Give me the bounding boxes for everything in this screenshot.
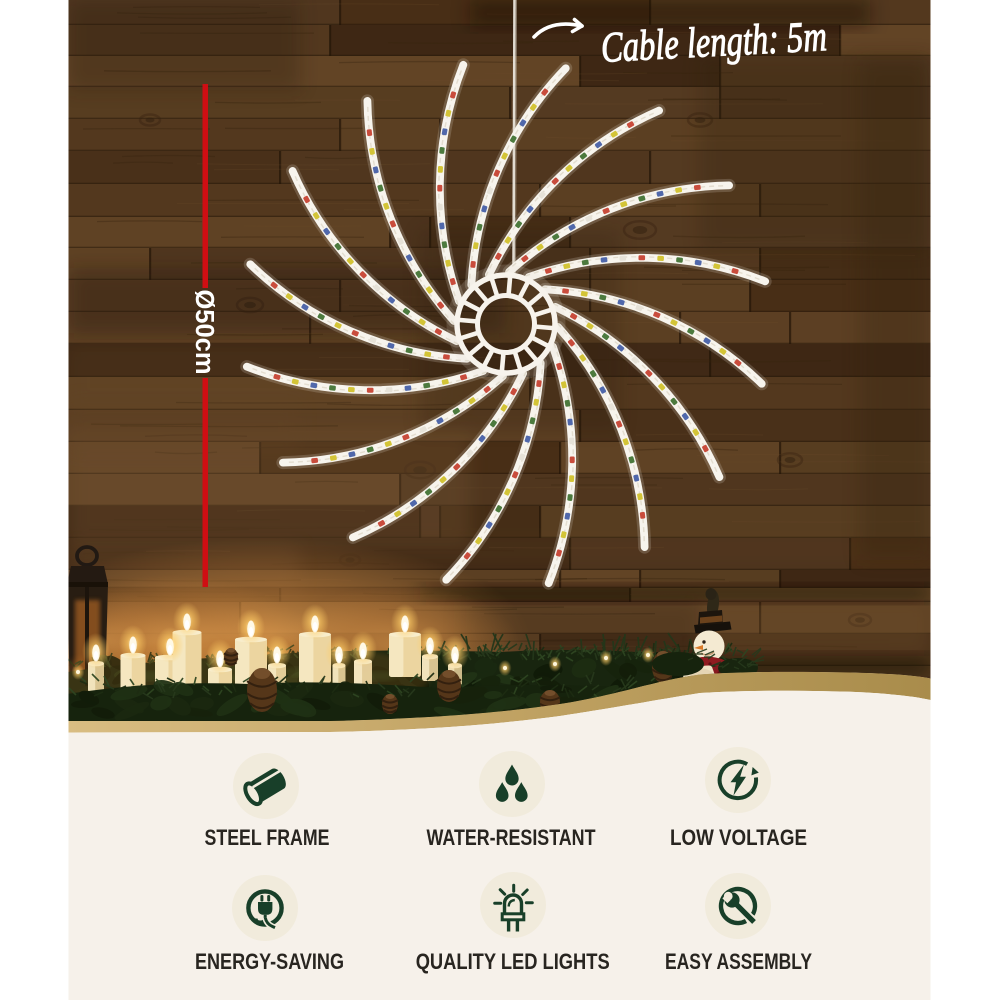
svg-text:ENERGY-SAVING: ENERGY-SAVING bbox=[195, 949, 344, 974]
svg-text:EASY ASSEMBLY: EASY ASSEMBLY bbox=[665, 949, 812, 974]
svg-text:QUALITY LED LIGHTS: QUALITY LED LIGHTS bbox=[416, 949, 610, 974]
svg-text:Ø50cm: Ø50cm bbox=[190, 289, 218, 374]
svg-text:WATER-RESISTANT: WATER-RESISTANT bbox=[427, 825, 596, 850]
svg-text:STEEL FRAME: STEEL FRAME bbox=[205, 825, 330, 850]
svg-text:LOW VOLTAGE: LOW VOLTAGE bbox=[670, 825, 807, 850]
